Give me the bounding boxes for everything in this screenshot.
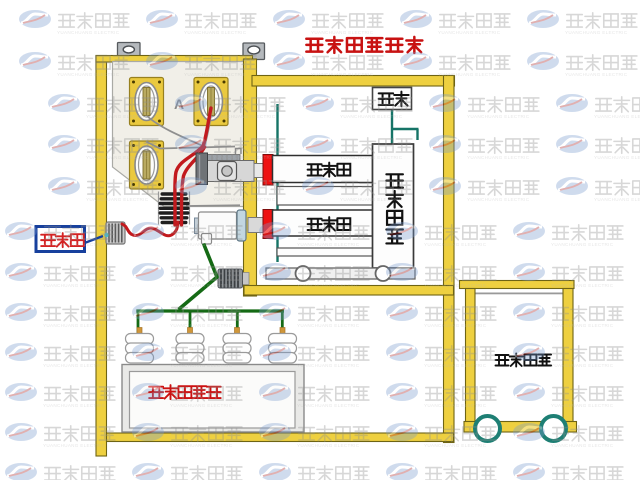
svg-text:YUANCHUANG ELECTRIC: YUANCHUANG ELECTRIC <box>551 363 614 368</box>
svg-text:YUANCHUANG ELECTRIC: YUANCHUANG ELECTRIC <box>565 72 628 77</box>
svg-text:YUANCHUANG ELECTRIC: YUANCHUANG ELECTRIC <box>170 403 233 408</box>
svg-text:YUANCHUANG ELECTRIC: YUANCHUANG ELECTRIC <box>424 283 487 288</box>
svg-text:YUANCHUANG ELECTRIC: YUANCHUANG ELECTRIC <box>565 30 628 35</box>
svg-text:YUANCHUANG ELECTRIC: YUANCHUANG ELECTRIC <box>170 283 233 288</box>
svg-text:YUANCHUANG ELECTRIC: YUANCHUANG ELECTRIC <box>467 155 530 160</box>
svg-text:YUANCHUANG ELECTRIC: YUANCHUANG ELECTRIC <box>43 363 106 368</box>
svg-text:YUANCHUANG ELECTRIC: YUANCHUANG ELECTRIC <box>170 323 233 328</box>
svg-text:YUANCHUANG ELECTRIC: YUANCHUANG ELECTRIC <box>340 114 403 119</box>
svg-text:YUANCHUANG ELECTRIC: YUANCHUANG ELECTRIC <box>467 114 530 119</box>
svg-text:YUANCHUANG ELECTRIC: YUANCHUANG ELECTRIC <box>594 155 640 160</box>
svg-text:YUANCHUANG ELECTRIC: YUANCHUANG ELECTRIC <box>297 363 360 368</box>
svg-text:YUANCHUANG ELECTRIC: YUANCHUANG ELECTRIC <box>438 30 501 35</box>
svg-text:YUANCHUANG ELECTRIC: YUANCHUANG ELECTRIC <box>43 242 106 247</box>
svg-text:YUANCHUANG ELECTRIC: YUANCHUANG ELECTRIC <box>43 323 106 328</box>
svg-text:YUANCHUANG ELECTRIC: YUANCHUANG ELECTRIC <box>551 403 614 408</box>
svg-text:YUANCHUANG ELECTRIC: YUANCHUANG ELECTRIC <box>184 72 247 77</box>
svg-text:YUANCHUANG ELECTRIC: YUANCHUANG ELECTRIC <box>424 443 487 448</box>
svg-text:YUANCHUANG ELECTRIC: YUANCHUANG ELECTRIC <box>86 114 149 119</box>
svg-text:YUANCHUANG ELECTRIC: YUANCHUANG ELECTRIC <box>297 403 360 408</box>
svg-text:YUANCHUANG ELECTRIC: YUANCHUANG ELECTRIC <box>424 323 487 328</box>
svg-text:YUANCHUANG ELECTRIC: YUANCHUANG ELECTRIC <box>213 155 276 160</box>
svg-text:YUANCHUANG ELECTRIC: YUANCHUANG ELECTRIC <box>551 323 614 328</box>
svg-text:YUANCHUANG ELECTRIC: YUANCHUANG ELECTRIC <box>43 403 106 408</box>
svg-text:YUANCHUANG ELECTRIC: YUANCHUANG ELECTRIC <box>467 197 530 202</box>
svg-text:YUANCHUANG ELECTRIC: YUANCHUANG ELECTRIC <box>213 197 276 202</box>
svg-text:YUANCHUANG ELECTRIC: YUANCHUANG ELECTRIC <box>551 443 614 448</box>
svg-text:YUANCHUANG ELECTRIC: YUANCHUANG ELECTRIC <box>170 363 233 368</box>
svg-text:YUANCHUANG ELECTRIC: YUANCHUANG ELECTRIC <box>43 283 106 288</box>
svg-text:YUANCHUANG ELECTRIC: YUANCHUANG ELECTRIC <box>43 443 106 448</box>
svg-text:YUANCHUANG ELECTRIC: YUANCHUANG ELECTRIC <box>594 114 640 119</box>
svg-text:YUANCHUANG ELECTRIC: YUANCHUANG ELECTRIC <box>424 363 487 368</box>
svg-text:YUANCHUANG ELECTRIC: YUANCHUANG ELECTRIC <box>424 403 487 408</box>
svg-text:YUANCHUANG ELECTRIC: YUANCHUANG ELECTRIC <box>340 197 403 202</box>
svg-text:YUANCHUANG ELECTRIC: YUANCHUANG ELECTRIC <box>551 283 614 288</box>
svg-text:YUANCHUANG ELECTRIC: YUANCHUANG ELECTRIC <box>424 242 487 247</box>
svg-text:YUANCHUANG ELECTRIC: YUANCHUANG ELECTRIC <box>57 72 120 77</box>
svg-text:YUANCHUANG ELECTRIC: YUANCHUANG ELECTRIC <box>297 242 360 247</box>
svg-text:YUANCHUANG ELECTRIC: YUANCHUANG ELECTRIC <box>297 283 360 288</box>
svg-text:YUANCHUANG ELECTRIC: YUANCHUANG ELECTRIC <box>340 155 403 160</box>
svg-text:YUANCHUANG ELECTRIC: YUANCHUANG ELECTRIC <box>86 155 149 160</box>
svg-text:YUANCHUANG ELECTRIC: YUANCHUANG ELECTRIC <box>594 197 640 202</box>
svg-text:YUANCHUANG ELECTRIC: YUANCHUANG ELECTRIC <box>213 114 276 119</box>
svg-text:YUANCHUANG ELECTRIC: YUANCHUANG ELECTRIC <box>184 30 247 35</box>
svg-text:YUANCHUANG ELECTRIC: YUANCHUANG ELECTRIC <box>57 30 120 35</box>
svg-text:YUANCHUANG ELECTRIC: YUANCHUANG ELECTRIC <box>86 197 149 202</box>
svg-text:YUANCHUANG ELECTRIC: YUANCHUANG ELECTRIC <box>551 242 614 247</box>
svg-text:YUANCHUANG ELECTRIC: YUANCHUANG ELECTRIC <box>438 72 501 77</box>
svg-text:YUANCHUANG ELECTRIC: YUANCHUANG ELECTRIC <box>297 323 360 328</box>
svg-text:YUANCHUANG ELECTRIC: YUANCHUANG ELECTRIC <box>311 30 374 35</box>
svg-text:YUANCHUANG ELECTRIC: YUANCHUANG ELECTRIC <box>311 72 374 77</box>
svg-text:YUANCHUANG ELECTRIC: YUANCHUANG ELECTRIC <box>297 443 360 448</box>
svg-text:YUANCHUANG ELECTRIC: YUANCHUANG ELECTRIC <box>170 242 233 247</box>
svg-text:YUANCHUANG ELECTRIC: YUANCHUANG ELECTRIC <box>170 443 233 448</box>
